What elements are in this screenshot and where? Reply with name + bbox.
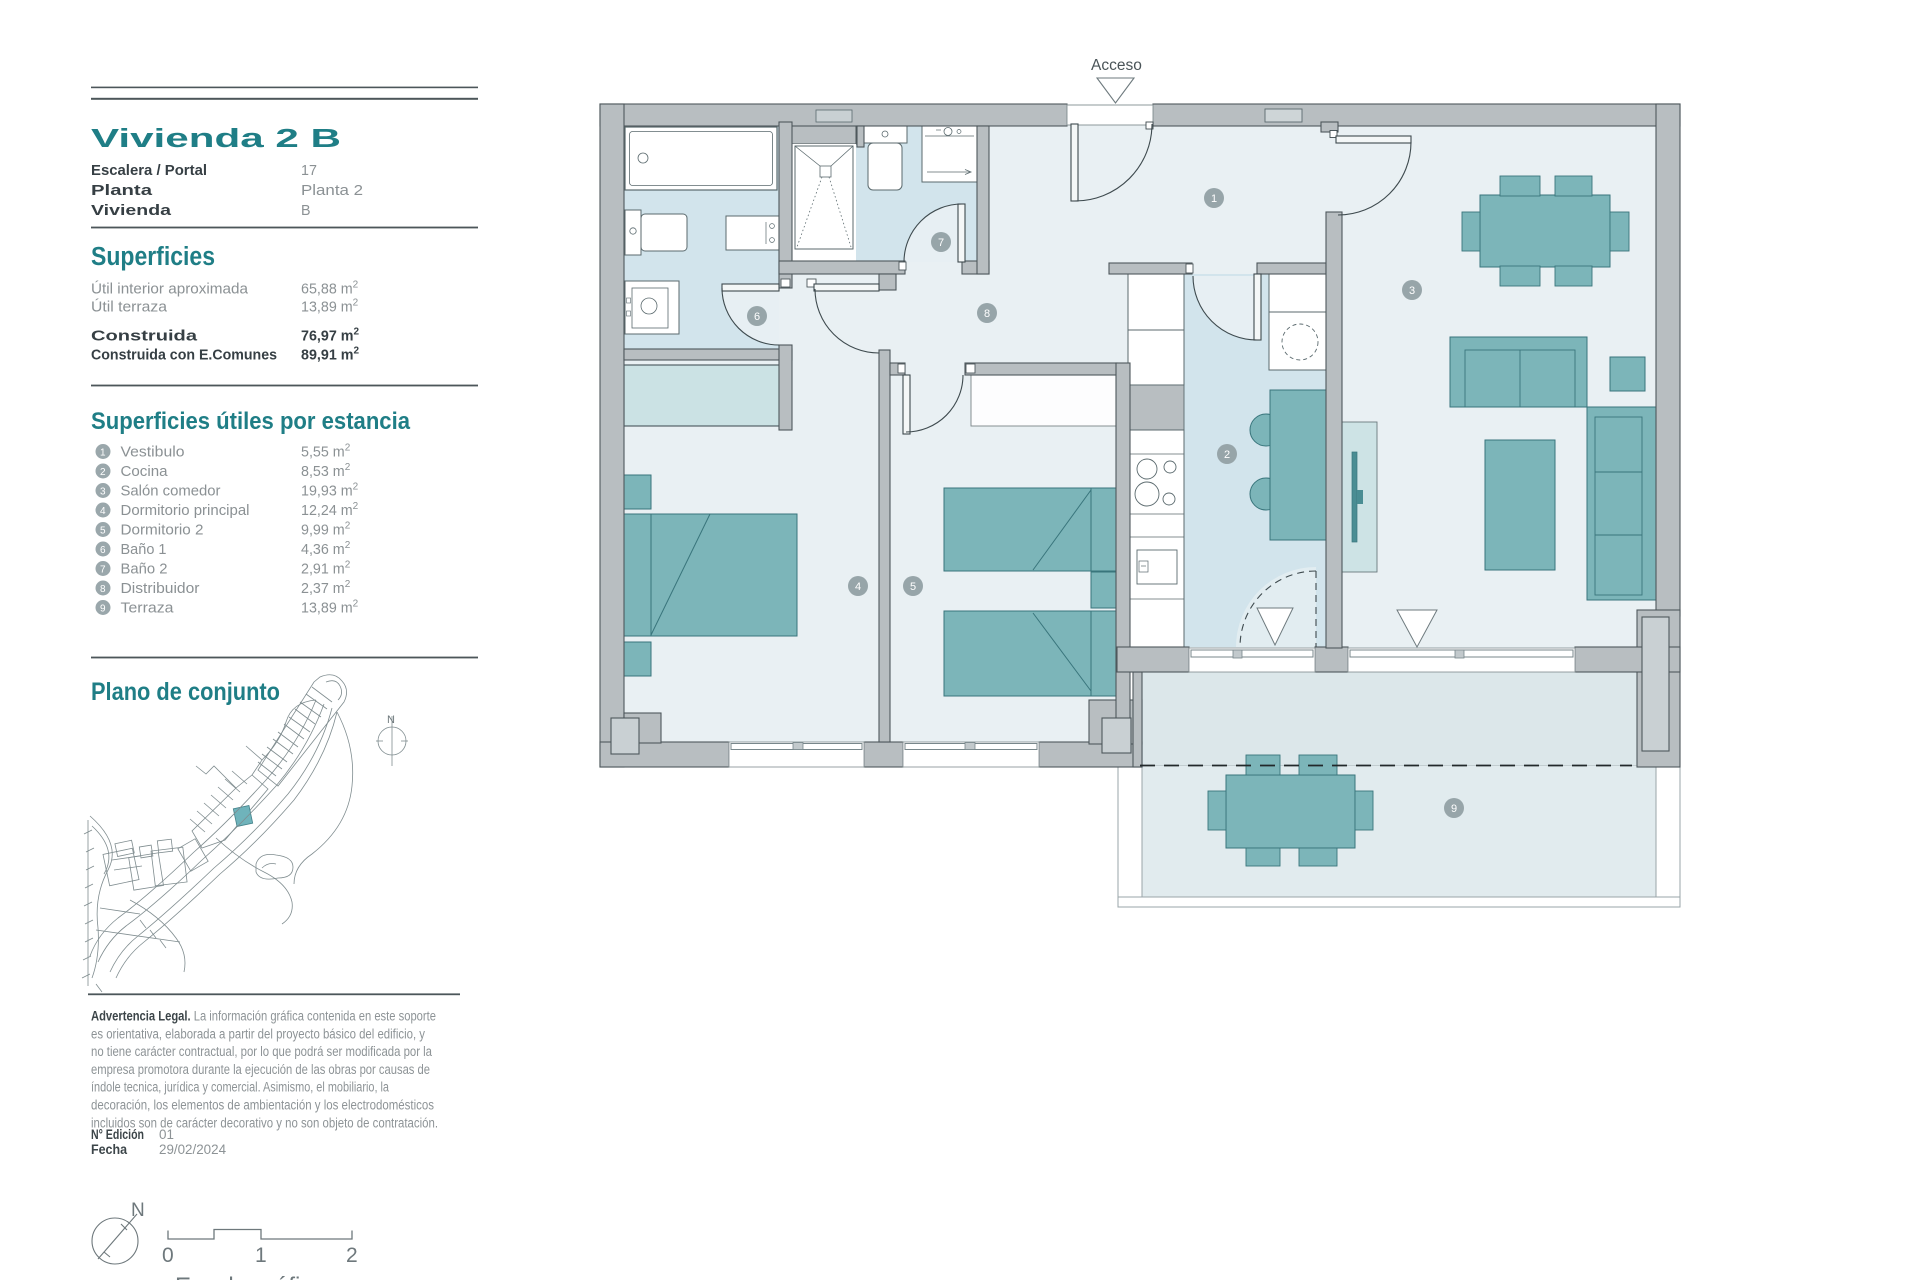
svg-text:Vivienda: Vivienda bbox=[91, 203, 172, 219]
svg-text:4: 4 bbox=[855, 581, 861, 593]
svg-text:5: 5 bbox=[100, 526, 106, 537]
svg-text:no tiene carácter contractual,: no tiene carácter contractual, por lo qu… bbox=[91, 1044, 432, 1059]
svg-text:0: 0 bbox=[162, 1244, 174, 1267]
svg-text:1: 1 bbox=[255, 1244, 267, 1267]
svg-text:19,93 m2: 19,93 m2 bbox=[301, 482, 359, 500]
svg-text:Baño 2: Baño 2 bbox=[121, 562, 168, 578]
svg-text:N: N bbox=[387, 714, 395, 726]
svg-text:Superficies útiles por estanci: Superficies útiles por estancia bbox=[91, 408, 410, 435]
svg-text:N° Edición: N° Edición bbox=[91, 1127, 144, 1142]
svg-text:Construida: Construida bbox=[91, 329, 198, 345]
svg-text:2,37 m2: 2,37 m2 bbox=[301, 579, 351, 597]
svg-text:2: 2 bbox=[346, 1244, 358, 1267]
svg-text:Salón comedor: Salón comedor bbox=[121, 484, 221, 500]
svg-text:empresa promotora durante la e: empresa promotora durante la ejecución d… bbox=[91, 1062, 430, 1077]
svg-text:Útil terraza: Útil terraza bbox=[91, 299, 167, 316]
svg-text:13,89 m2: 13,89 m2 bbox=[301, 298, 359, 316]
svg-text:6: 6 bbox=[754, 311, 760, 323]
svg-text:2: 2 bbox=[1224, 449, 1230, 461]
svg-text:7: 7 bbox=[938, 237, 944, 249]
svg-text:índole tecnica, jurídica y com: índole tecnica, jurídica y comercial. As… bbox=[91, 1080, 389, 1095]
svg-text:Dormitorio 2: Dormitorio 2 bbox=[121, 523, 204, 539]
svg-text:8: 8 bbox=[100, 584, 106, 595]
svg-text:Dormitorio principal: Dormitorio principal bbox=[121, 503, 250, 519]
svg-text:9,99 m2: 9,99 m2 bbox=[301, 521, 351, 539]
svg-text:89,91 m2: 89,91 m2 bbox=[301, 346, 359, 364]
svg-text:Baño 1: Baño 1 bbox=[121, 542, 167, 558]
svg-text:B: B bbox=[301, 203, 311, 219]
svg-text:es orientativa, elaborada a pa: es orientativa, elaborada a partir del p… bbox=[91, 1026, 425, 1041]
svg-text:Vivienda 2 B: Vivienda 2 B bbox=[91, 125, 341, 153]
svg-text:Distribuidor: Distribuidor bbox=[121, 581, 200, 597]
svg-text:Fecha: Fecha bbox=[91, 1142, 128, 1157]
svg-text:5,55 m2: 5,55 m2 bbox=[301, 443, 351, 461]
svg-text:N: N bbox=[131, 1200, 145, 1221]
svg-text:6: 6 bbox=[100, 545, 106, 556]
svg-text:Planta: Planta bbox=[91, 183, 153, 199]
svg-text:29/02/2024: 29/02/2024 bbox=[159, 1142, 227, 1157]
svg-text:12,24 m2: 12,24 m2 bbox=[301, 501, 359, 519]
svg-text:Cocina: Cocina bbox=[121, 464, 168, 480]
svg-text:Vestibulo: Vestibulo bbox=[121, 445, 185, 461]
svg-text:Acceso: Acceso bbox=[1091, 57, 1142, 74]
svg-text:5: 5 bbox=[910, 581, 916, 593]
svg-text:13,89 m2: 13,89 m2 bbox=[301, 599, 359, 617]
svg-text:17: 17 bbox=[301, 163, 317, 179]
svg-text:Plano de conjunto: Plano de conjunto bbox=[91, 678, 280, 706]
svg-text:65,88 m2: 65,88 m2 bbox=[301, 280, 359, 298]
svg-text:76,97 m2: 76,97 m2 bbox=[301, 327, 359, 345]
svg-text:1: 1 bbox=[100, 448, 106, 459]
svg-text:01: 01 bbox=[159, 1127, 174, 1142]
svg-text:Construida con E.Comunes: Construida con E.Comunes bbox=[91, 348, 277, 364]
svg-text:3: 3 bbox=[1409, 285, 1415, 297]
svg-text:4,36 m2: 4,36 m2 bbox=[301, 540, 351, 558]
svg-text:9: 9 bbox=[1451, 803, 1457, 815]
svg-text:Escala gráfica: Escala gráfica bbox=[175, 1273, 326, 1280]
svg-text:7: 7 bbox=[100, 565, 106, 576]
svg-text:1: 1 bbox=[1211, 193, 1217, 205]
svg-text:Superficies: Superficies bbox=[91, 243, 215, 271]
svg-text:9: 9 bbox=[100, 604, 106, 615]
svg-text:Planta 2: Planta 2 bbox=[301, 183, 363, 199]
svg-text:2,91 m2: 2,91 m2 bbox=[301, 560, 351, 578]
svg-text:Escalera / Portal: Escalera / Portal bbox=[91, 163, 207, 179]
svg-text:8,53 m2: 8,53 m2 bbox=[301, 462, 351, 480]
svg-text:8: 8 bbox=[984, 308, 990, 320]
svg-text:Terraza: Terraza bbox=[121, 601, 174, 617]
svg-text:decoración, los elementos de a: decoración, los elementos de ambientació… bbox=[91, 1098, 434, 1113]
svg-text:Útil interior aproximada: Útil interior aproximada bbox=[91, 281, 248, 298]
svg-text:2: 2 bbox=[100, 467, 106, 478]
svg-text:4: 4 bbox=[100, 506, 106, 517]
svg-text:Advertencia Legal. La informac: Advertencia Legal. La información gráfic… bbox=[91, 1009, 436, 1024]
svg-text:3: 3 bbox=[100, 487, 106, 498]
